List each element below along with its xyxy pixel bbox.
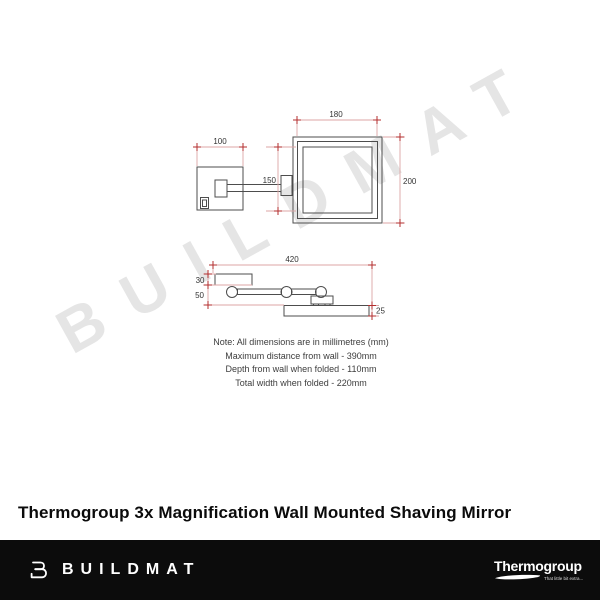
dim-mirror-depth: 25	[376, 307, 385, 316]
top-view: 420 30 50 25	[195, 255, 385, 320]
front-view: 100 180 150 200	[193, 110, 417, 227]
buildmat-wordmark: BUILDMAT	[62, 561, 200, 579]
product-title: Thermogroup 3x Magnification Wall Mounte…	[18, 503, 578, 523]
buildmat-logo: BUILDMAT	[28, 558, 200, 582]
dim-plate-width: 100	[213, 137, 227, 146]
product-diagram-page: BUILDMAT 100 180 150	[0, 0, 600, 600]
dim-extended-width: 420	[285, 255, 299, 264]
wall-plate-top	[215, 274, 252, 285]
thermogroup-swoosh-icon	[494, 574, 542, 581]
swing-arm-front	[227, 185, 281, 192]
dim-arm-length: 150	[263, 176, 277, 185]
dim-plate-depth: 30	[196, 276, 205, 285]
top-dimension-markers	[204, 261, 376, 320]
pivot-joint-2	[281, 287, 292, 298]
arm-segment-1	[238, 289, 282, 295]
dim-arm-depth: 50	[195, 291, 204, 300]
buildmat-b-icon	[28, 558, 53, 582]
thermogroup-logo: Thermogroup That little bit extra...	[494, 559, 588, 581]
arm-segment-2	[292, 289, 317, 295]
note-line: Total width when folded - 220mm	[180, 377, 422, 391]
mirror-top-view	[284, 306, 369, 317]
mirror-frame-outer	[293, 137, 382, 223]
front-dimension-lines	[197, 116, 405, 223]
footer-bar: BUILDMAT Thermogroup That little bit ext…	[0, 540, 600, 600]
dim-mirror-width: 180	[329, 110, 343, 119]
hinge-block	[215, 180, 227, 197]
switch-inner	[203, 200, 207, 207]
pivot-joint-1	[227, 287, 238, 298]
mirror-frame-mid	[298, 142, 378, 219]
dim-mirror-height: 200	[403, 177, 417, 186]
note-line: Depth from wall when folded - 110mm	[180, 363, 422, 377]
mirror-glass	[303, 147, 372, 213]
note-line: Note: All dimensions are in millimetres …	[180, 336, 422, 350]
wall-plate-front	[197, 167, 243, 210]
thermogroup-swoosh-row: That little bit extra...	[494, 574, 588, 581]
dimension-notes: Note: All dimensions are in millimetres …	[180, 336, 422, 391]
note-line: Maximum distance from wall - 390mm	[180, 350, 422, 364]
thermogroup-tagline: That little bit extra...	[544, 576, 583, 581]
mirror-mount-front	[281, 176, 292, 196]
thermogroup-wordmark: Thermogroup	[494, 559, 582, 573]
